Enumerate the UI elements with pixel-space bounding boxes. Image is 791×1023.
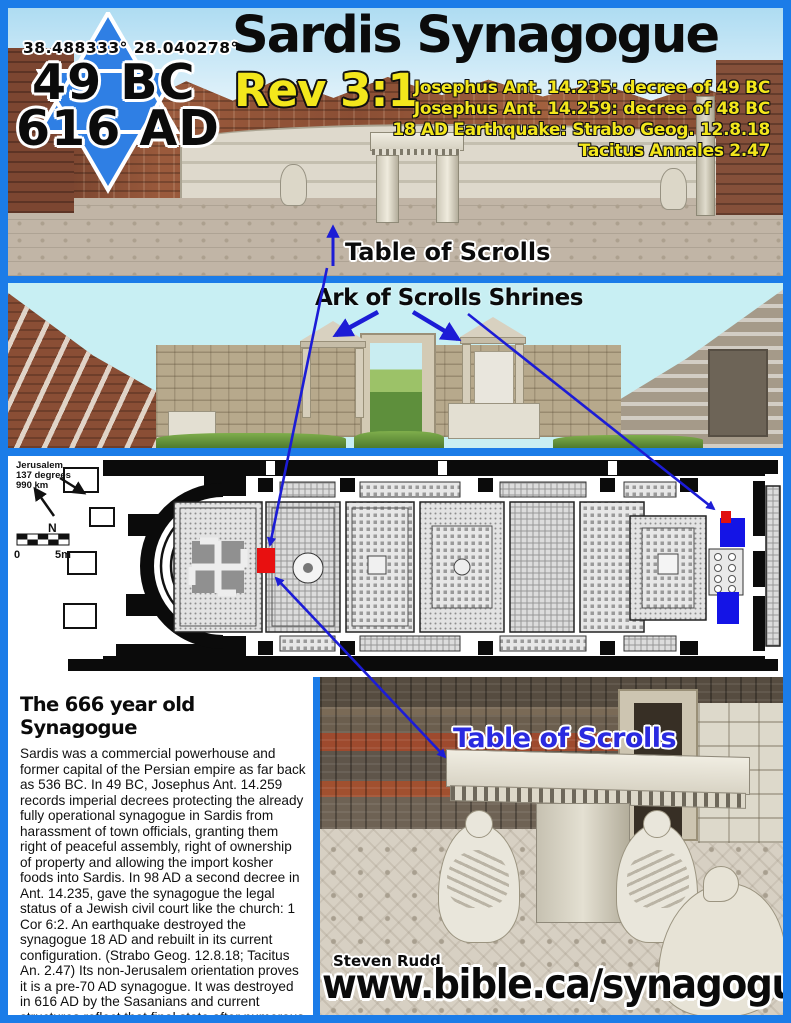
grass — [156, 433, 346, 448]
ark-shrine-right — [460, 317, 526, 344]
shrine-column — [355, 348, 364, 418]
marble-panel — [708, 349, 768, 437]
shrine-column — [302, 348, 311, 418]
shrine-door-panel — [474, 351, 514, 407]
column-base-grid — [709, 549, 743, 595]
article-panel: The 666 year old Synagogue Sardis was a … — [8, 677, 313, 1015]
year-destroyed: 616 AD — [16, 100, 220, 157]
citation-line: Josephus Ant. 14.235: decree of 49 BC — [392, 78, 770, 99]
doorway-opening — [370, 343, 422, 437]
citation-line: 18 AD Earthquake: Strabo Geog. 12.8.18 — [392, 120, 770, 141]
ark-shrine-left — [300, 321, 366, 348]
shrine-pediment — [460, 317, 526, 337]
marble-fragment — [448, 403, 540, 439]
table-leg — [376, 155, 399, 223]
article-body: Sardis was a commercial powerhouse and f… — [20, 746, 306, 1015]
table-of-scrolls-caption: Table of Scrolls — [453, 723, 676, 754]
photo-table-of-scrolls: Table of Scrolls Steven Rudd www.bible.c… — [320, 677, 783, 1015]
poster-title: Sardis Synagogue — [232, 8, 718, 65]
shrine-entablature — [300, 341, 366, 348]
lion-statue — [660, 168, 687, 210]
grass — [354, 431, 444, 448]
panel-motif — [368, 556, 386, 574]
citation-line: Tacitus Annales 2.47 — [392, 141, 770, 162]
shrine-red-marker — [721, 511, 731, 523]
table-of-scrolls-caption: Table of Scrolls — [345, 238, 550, 266]
table-of-scrolls-marker — [257, 548, 275, 573]
floor-plan-section: Jerusalem 137 degrees 990 km N 0 5m — [8, 456, 783, 677]
synagogue-floor-plan: Jerusalem 137 degrees 990 km N 0 5m — [8, 456, 783, 677]
website-url: www.bible.ca/synagogues — [322, 960, 783, 1008]
north-label: N — [48, 521, 57, 535]
scale-five-label: 5m — [55, 549, 71, 561]
citation-line: Josephus Ant. 14.259: decree of 48 BC — [392, 99, 770, 120]
shrine-pediment — [300, 321, 366, 341]
panel-motif — [454, 559, 470, 575]
jerusalem-note-line3: 990 km — [16, 480, 48, 491]
table-leg — [436, 155, 459, 223]
fountain-center — [303, 563, 313, 573]
eagle-relief-left — [438, 823, 520, 943]
poster: 38.488333° 28.040278° 49 BC 616 AD Sardi… — [0, 0, 791, 1023]
scale-zero-label: 0 — [14, 549, 20, 561]
photo-ark-shrines: Ark of Scrolls Shrines — [8, 283, 783, 448]
historical-citations: Josephus Ant. 14.235: decree of 49 BC Jo… — [392, 78, 770, 162]
photo-synagogue-panorama: 38.488333° 28.040278° 49 BC 616 AD Sardi… — [8, 8, 783, 276]
forecourt-center — [658, 554, 678, 574]
grass — [553, 435, 703, 448]
lion-statue — [280, 164, 307, 206]
shrine-marker-south — [717, 592, 739, 624]
bible-verse: Rev 3:1 — [234, 64, 418, 117]
brick-ruin-left — [8, 283, 163, 448]
article-title: The 666 year old Synagogue — [20, 693, 303, 739]
ark-shrines-caption: Ark of Scrolls Shrines — [315, 285, 583, 311]
shrine-entablature — [460, 337, 526, 344]
